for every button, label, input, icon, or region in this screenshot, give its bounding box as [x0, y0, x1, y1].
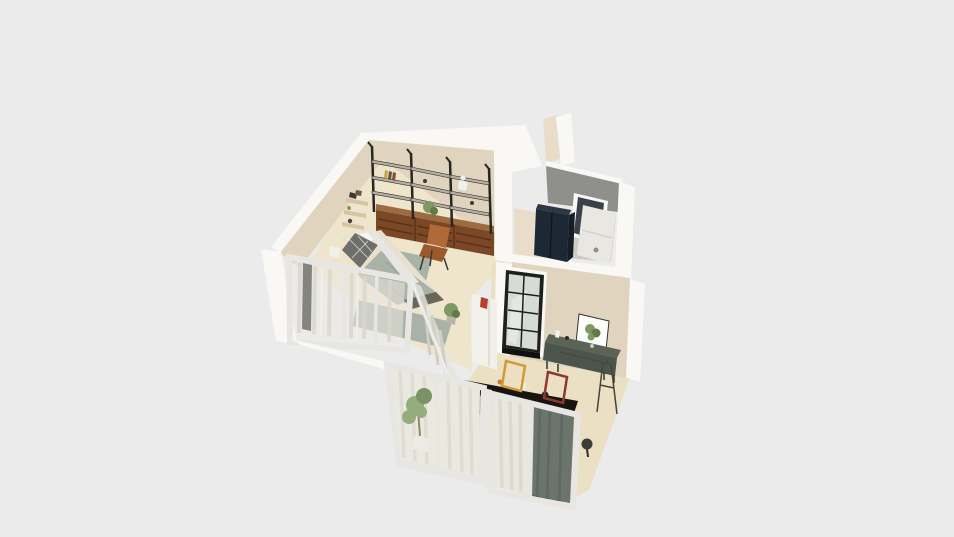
floorplan-viewport[interactable] [0, 0, 954, 537]
sideboard-decor [565, 336, 569, 340]
print-leaf [588, 334, 595, 341]
mini-plant [347, 206, 351, 210]
mini-object [348, 219, 352, 223]
potted-plant-small [430, 207, 438, 215]
stool-top [582, 439, 593, 450]
glass-mullion [344, 268, 345, 339]
small-object [470, 201, 474, 205]
floor-plant [452, 310, 460, 318]
white-vase-top [461, 176, 466, 181]
balcony-mullion [437, 377, 438, 468]
curtain-gap [302, 263, 312, 331]
nightstand [329, 246, 340, 258]
floorplan-render [0, 0, 954, 537]
small-object [423, 179, 427, 183]
washer-door-glass [594, 248, 599, 253]
sideboard-decor [590, 344, 594, 348]
balcony-door-left [387, 364, 484, 481]
glass-mullion [375, 274, 377, 344]
stool-leg [587, 449, 588, 457]
red-bottle [480, 297, 488, 309]
mini-frame [355, 190, 362, 196]
balcony-mullion [530, 404, 532, 498]
divider-wall-face [494, 153, 512, 260]
washer-unit [577, 205, 616, 264]
